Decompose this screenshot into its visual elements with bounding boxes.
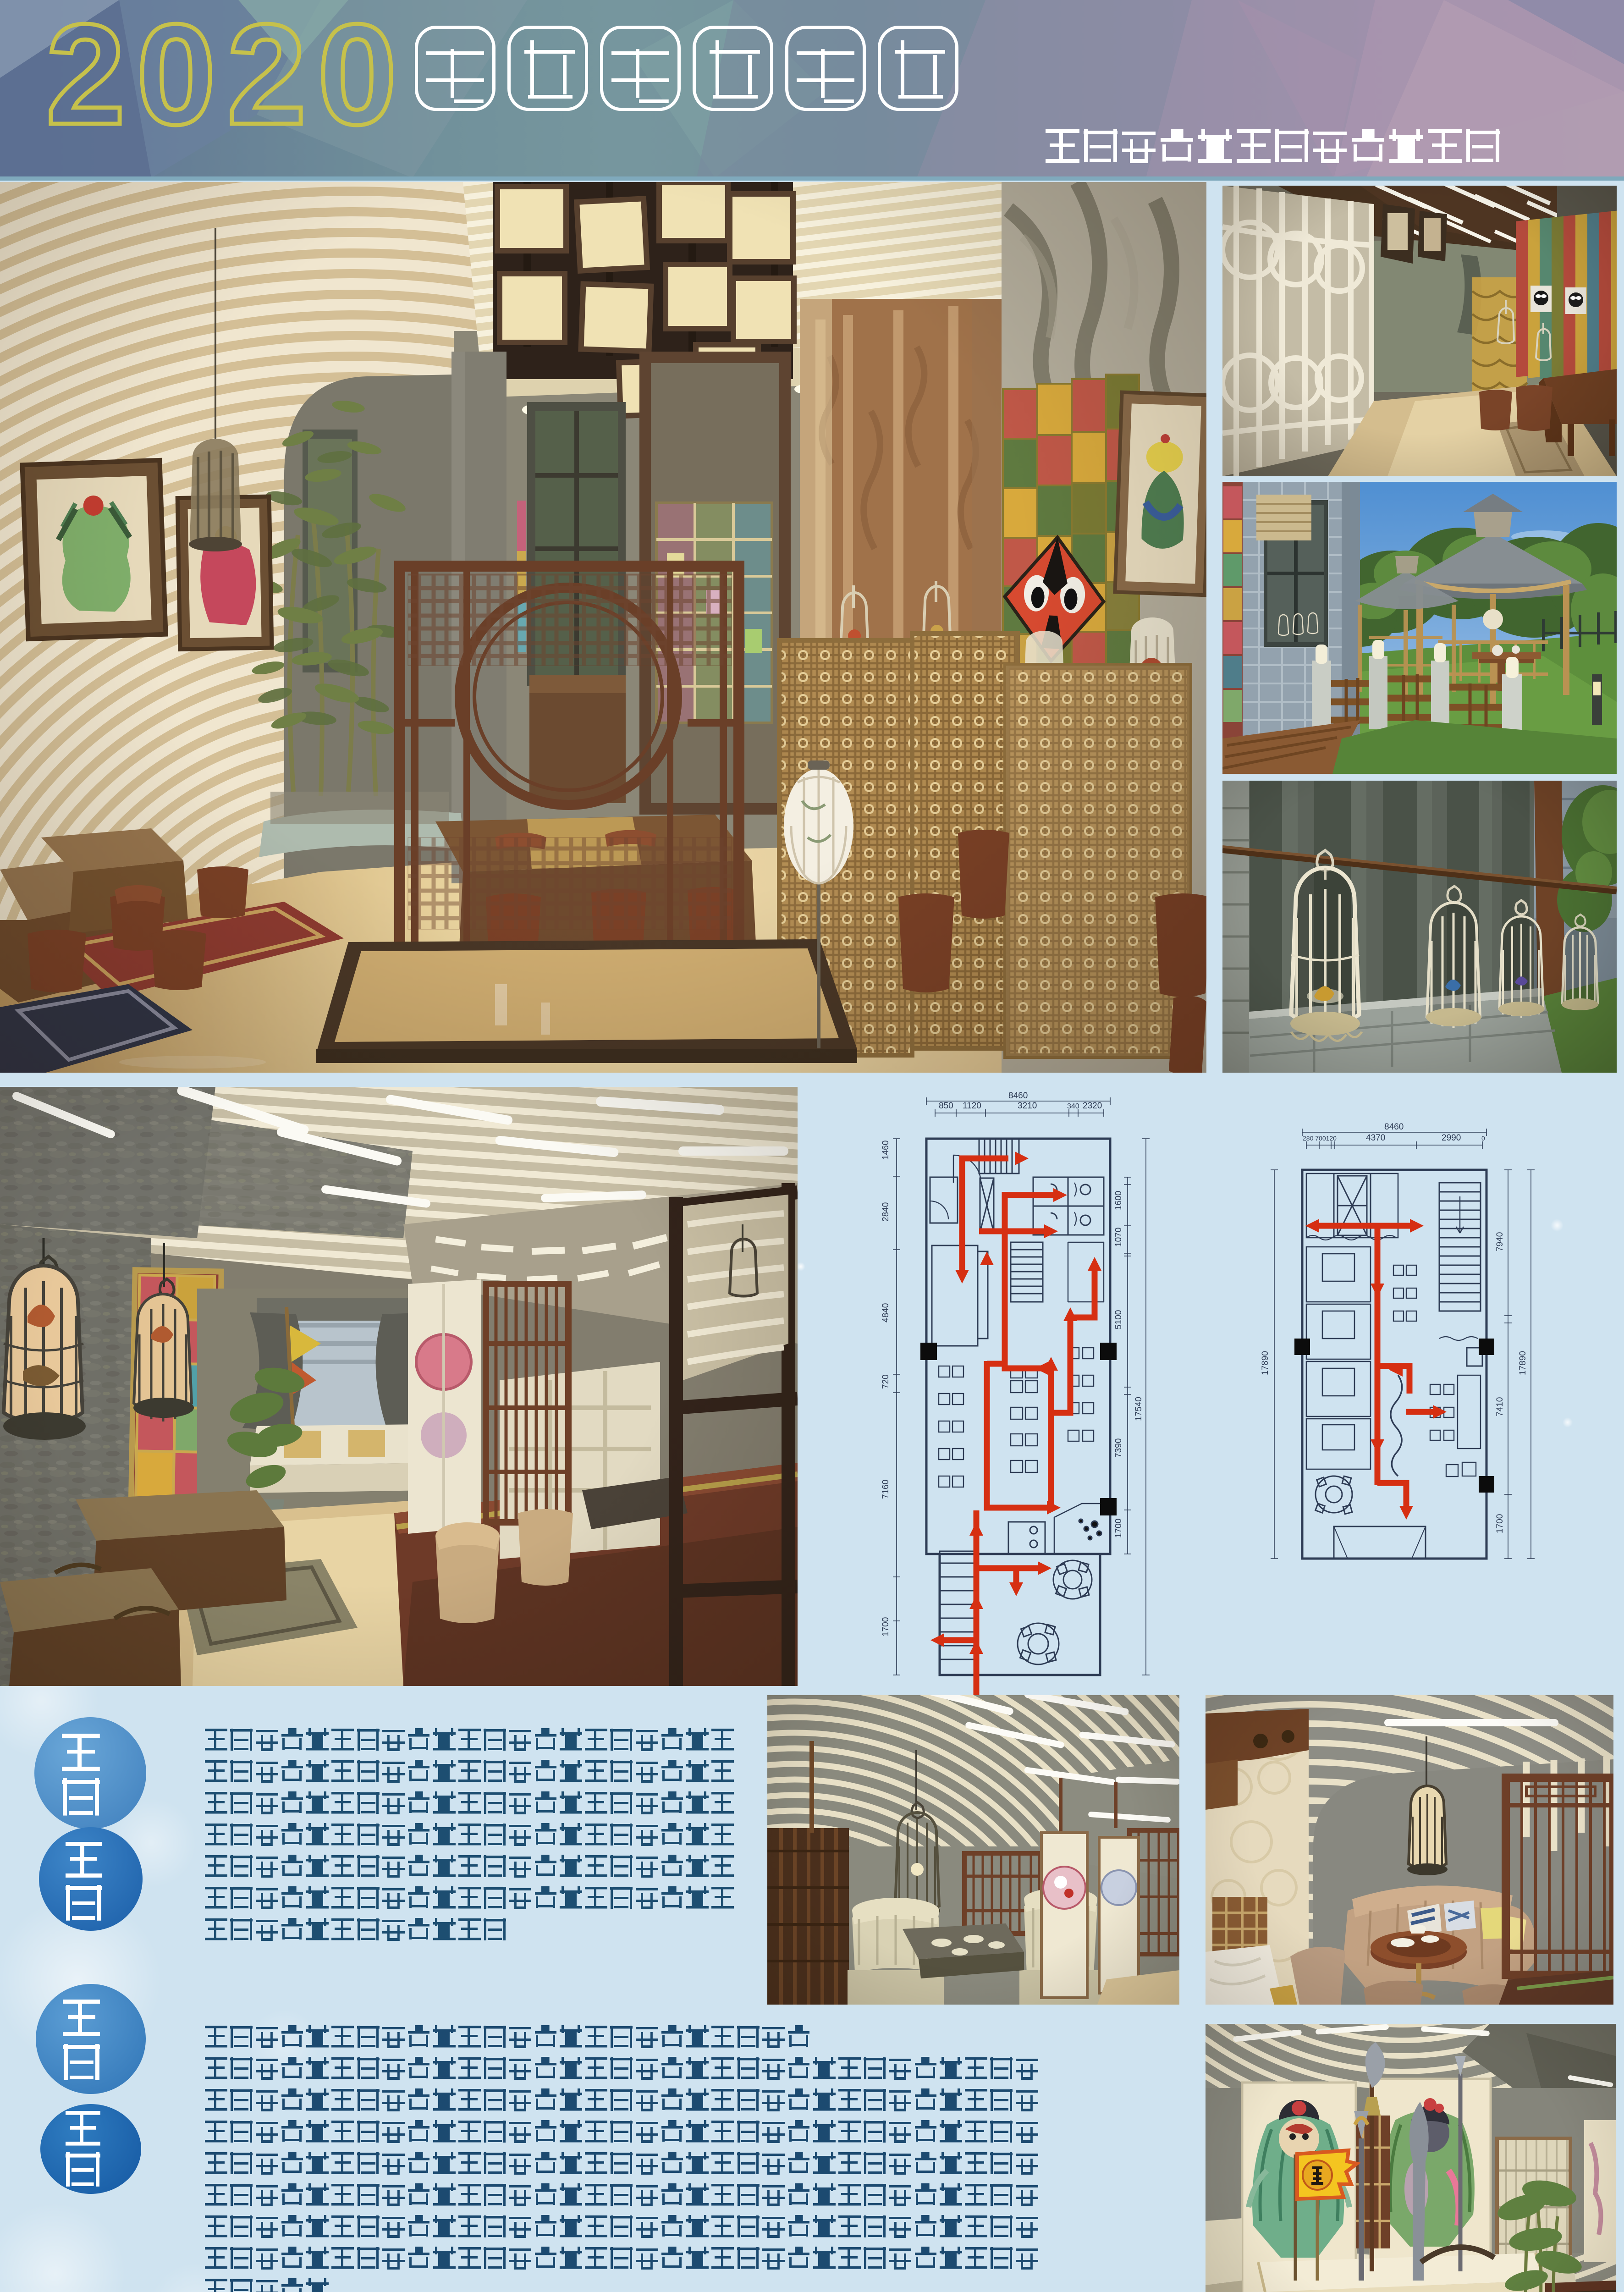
svg-text:17540: 17540 [1134,1397,1144,1421]
svg-text:1700: 1700 [881,1617,891,1636]
svg-text:1700: 1700 [1495,1514,1505,1533]
svg-text:7410: 7410 [1495,1397,1505,1416]
svg-text:1120: 1120 [963,1101,981,1111]
svg-text:17890: 17890 [1261,1351,1270,1375]
svg-text:280 700120: 280 700120 [1303,1135,1337,1142]
svg-text:7160: 7160 [881,1480,891,1499]
svg-text:1700: 1700 [1114,1519,1123,1538]
svg-text:4370: 4370 [1366,1133,1385,1143]
svg-text:340: 340 [1067,1102,1079,1110]
svg-text:8460: 8460 [1008,1091,1028,1101]
svg-text:7390: 7390 [1114,1438,1123,1458]
svg-text:2320: 2320 [1083,1101,1102,1111]
svg-text:3210: 3210 [1018,1101,1037,1111]
svg-text:850: 850 [939,1101,953,1111]
svg-text:7940: 7940 [1495,1232,1505,1251]
svg-text:1460: 1460 [881,1140,891,1160]
svg-text:0: 0 [1481,1135,1485,1142]
svg-text:17890: 17890 [1518,1351,1528,1375]
svg-text:8460: 8460 [1384,1122,1404,1132]
svg-text:2840: 2840 [881,1202,891,1222]
svg-text:1070: 1070 [1114,1228,1123,1247]
svg-text:1600: 1600 [1114,1191,1123,1210]
svg-text:5100: 5100 [1114,1310,1123,1329]
svg-text:2990: 2990 [1442,1133,1461,1143]
svg-text:4840: 4840 [881,1303,891,1322]
svg-text:720: 720 [881,1374,891,1389]
